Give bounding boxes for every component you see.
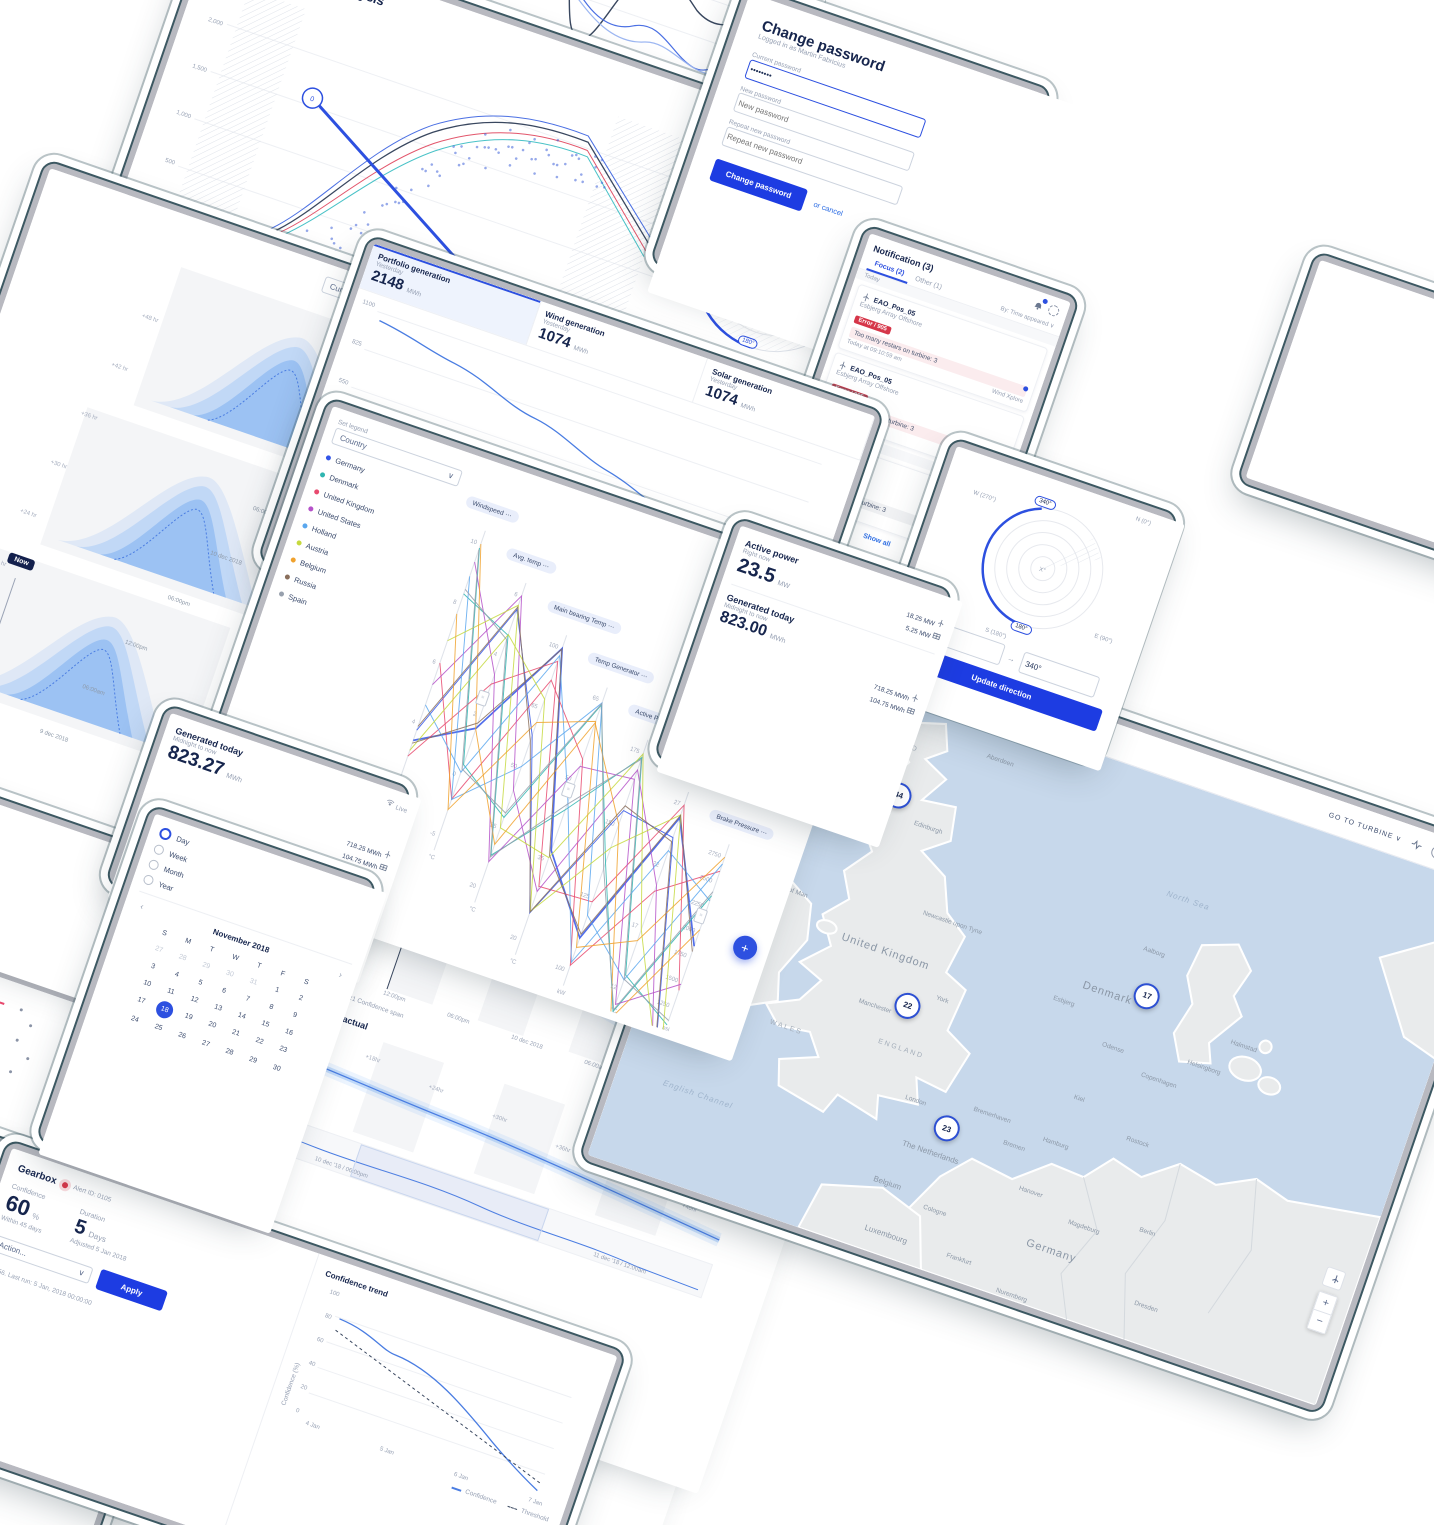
dashboard-collage: Active power in kW 13 Sep16 Sep19 Sep22 … [0, 0, 1434, 1525]
country-color-dot [325, 455, 331, 461]
svg-text:-5: -5 [429, 830, 436, 838]
country-name: Germany [334, 456, 366, 475]
svg-text:8: 8 [452, 599, 458, 606]
svg-text:°C: °C [509, 958, 518, 966]
turbine-cluster-marker[interactable]: 17 [1131, 979, 1164, 1012]
svg-text:X°: X° [1038, 566, 1047, 574]
country-name: Holland [311, 524, 338, 541]
axis-tick: 0 [288, 1406, 299, 1415]
axis-tick: 100 [329, 1289, 340, 1298]
country-name: Belgium [299, 558, 328, 575]
live-icon [385, 798, 396, 808]
svg-text:20: 20 [509, 934, 518, 942]
legend-entry: Threshold [507, 1503, 550, 1524]
axis-tick: 40 [305, 1359, 316, 1368]
axis-tick: 60 [313, 1336, 324, 1345]
gear-icon[interactable] [1047, 303, 1061, 317]
chevron-down-icon: ∨ [77, 1268, 85, 1278]
svg-text:psi: psi [661, 1025, 670, 1033]
radio-icon [142, 874, 155, 887]
mode-label: Week [168, 849, 189, 864]
svg-text:100: 100 [548, 642, 560, 651]
help-icon[interactable]: ? [1430, 844, 1434, 861]
svg-text:20: 20 [468, 882, 477, 890]
solar-icon [931, 631, 941, 641]
country-name: Austria [305, 541, 330, 557]
radio-icon [147, 858, 160, 871]
solar-icon [378, 862, 388, 872]
svg-text:°C: °C [427, 854, 436, 862]
axis-tick: 1,000 [175, 110, 191, 121]
mode-label: Day [175, 834, 191, 847]
next-month-button[interactable]: › [338, 969, 344, 979]
axis-tick: 80 [321, 1312, 332, 1321]
radio-icon [153, 843, 166, 856]
stat-unit: MWh [405, 287, 422, 299]
calendar-day[interactable]: 30 [262, 1057, 291, 1079]
turbine-cluster-marker[interactable]: 23 [930, 1112, 963, 1145]
alert-dot [61, 1181, 69, 1189]
svg-text:2750: 2750 [707, 850, 722, 860]
arrow-icon: → [1006, 653, 1016, 664]
confidence-unit: % [31, 1211, 41, 1222]
date-label: 9 dec 2018 [39, 729, 69, 744]
active-power-unit: MW [776, 580, 790, 591]
duration-unit: Days [87, 1229, 107, 1243]
turbine-cluster-marker[interactable]: 22 [891, 989, 924, 1022]
svg-text:6: 6 [513, 592, 519, 599]
svg-text:100: 100 [554, 964, 566, 973]
turbine-icon [936, 618, 946, 629]
svg-text:0: 0 [451, 771, 457, 778]
country-name: Spain [287, 592, 308, 607]
svg-text:kW: kW [556, 989, 566, 998]
radio-icon [158, 826, 173, 841]
axis-tick: 825 [348, 338, 362, 348]
svg-text:2: 2 [472, 711, 478, 718]
stat-unit: MWh [572, 345, 589, 357]
calendar-day[interactable]: 18 [154, 999, 176, 1021]
country-color-dot [290, 557, 296, 563]
axis-tick: 1100 [362, 299, 376, 309]
country-name: Denmark [328, 473, 360, 491]
axis-tick: 550 [335, 376, 349, 386]
generated-today-unit: MWh [225, 772, 243, 784]
country-color-dot [302, 523, 308, 529]
mode-label: Month [163, 864, 186, 879]
axis-tick: 500 [159, 156, 175, 167]
offset-label: +42 hr [110, 362, 128, 373]
axis-tick: 20 [297, 1383, 308, 1392]
offset-label: +30 hr [49, 460, 67, 471]
panel-cropped-top-right [1238, 252, 1434, 569]
svg-text:6: 6 [431, 659, 437, 666]
stat-unit: MWh [740, 402, 757, 414]
offset-label: +48 hr [141, 314, 159, 325]
country-color-dot [319, 472, 325, 478]
axis-tick: 2,000 [207, 17, 223, 28]
turbine-icon [383, 849, 393, 860]
country-color-dot [284, 574, 290, 580]
svg-text:27: 27 [673, 800, 682, 808]
axis-tick: 1,500 [191, 63, 207, 74]
offset-label: +24 hr [19, 509, 37, 520]
turbine-icon [1329, 1273, 1342, 1286]
country-color-dot [278, 591, 284, 597]
mode-label: Year [157, 879, 174, 892]
bell-icon[interactable] [1032, 298, 1046, 313]
cancel-link[interactable]: or cancel [812, 199, 844, 217]
prev-month-button[interactable]: ‹ [139, 901, 145, 911]
country-color-dot [314, 489, 320, 495]
svg-text:4: 4 [411, 719, 417, 726]
turbine-icon [910, 693, 920, 704]
generated-today-unit: MWh [769, 633, 787, 645]
svg-text:17: 17 [631, 922, 640, 930]
svg-text:10: 10 [470, 538, 479, 546]
alert-id: Alert ID: 0105 [72, 1184, 112, 1204]
svg-text:°C: °C [468, 906, 477, 914]
svg-text:65: 65 [591, 695, 600, 703]
country-color-dot [296, 540, 302, 546]
country-color-dot [308, 506, 314, 512]
solar-icon [906, 706, 916, 716]
country-name: Russia [293, 575, 318, 591]
date-label: 06:00pm [167, 595, 191, 608]
gearbox-title: Gearbox [16, 1163, 58, 1187]
svg-text:175: 175 [629, 746, 641, 755]
activity-icon[interactable] [1410, 838, 1425, 851]
